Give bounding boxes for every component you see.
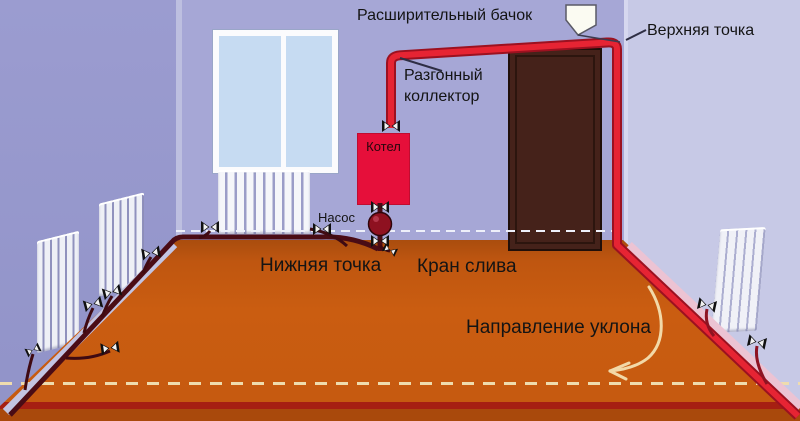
label-bottom-point: Нижняя точка: [260, 255, 381, 277]
radiator-stubs: [25, 229, 767, 390]
label-slope-direction: Направление уклона: [466, 317, 651, 339]
pump-icon: [369, 213, 392, 236]
label-pump: Насос: [318, 210, 355, 225]
label-drain-valve: Кран слива: [417, 256, 517, 278]
label-accelerating-collector: Разгонный коллектор: [404, 66, 514, 108]
pointer-line-top-point: [626, 30, 646, 40]
expansion-tank-icon: [566, 5, 596, 35]
valve-icon: [100, 341, 119, 355]
label-top-point: Верхняя точка: [647, 22, 754, 40]
piping-overlay: [0, 0, 800, 421]
skirting-right-diagonal: [628, 246, 800, 408]
heating-system-diagram: Котел: [0, 0, 800, 421]
label-expansion-tank: Расширительный бачок: [357, 7, 532, 25]
